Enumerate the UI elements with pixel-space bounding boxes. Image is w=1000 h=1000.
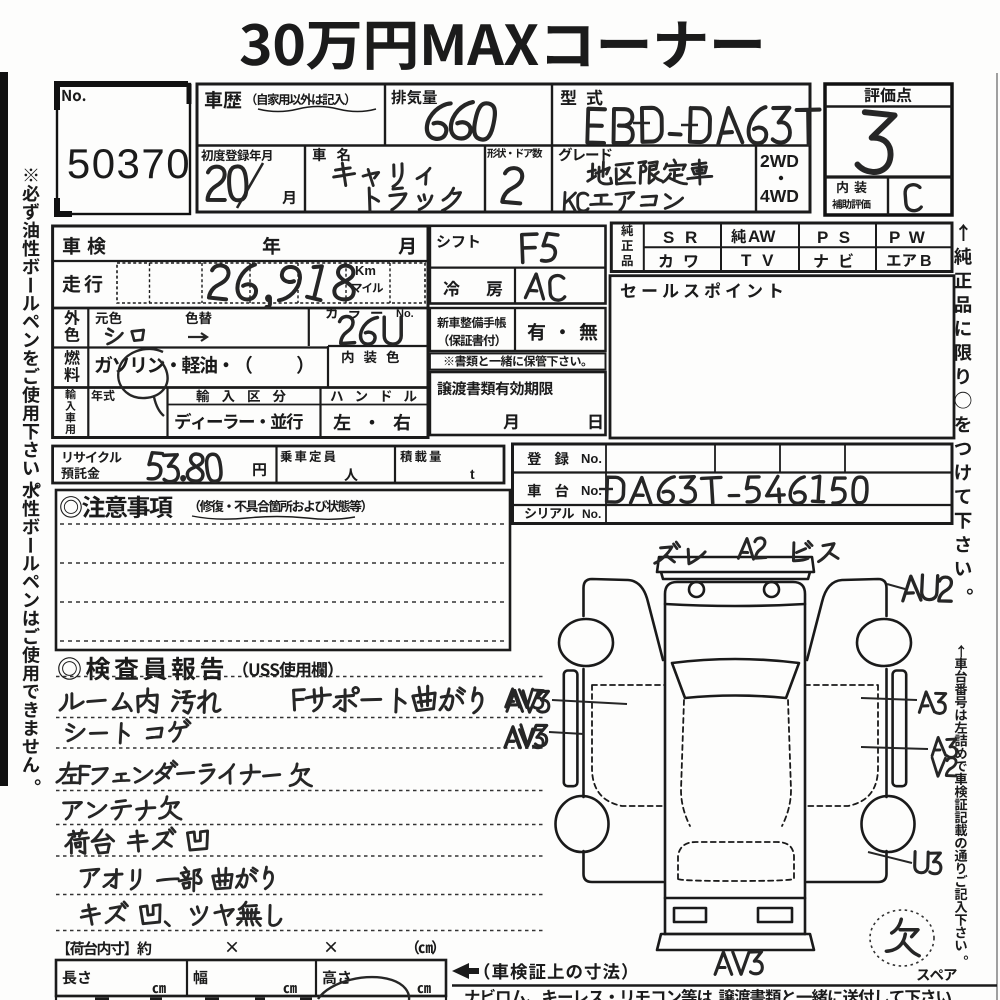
svg-text:No.: No. [581,451,602,466]
svg-text:2WD: 2WD [760,151,799,171]
svg-text:t: t [470,466,475,482]
svg-text:P W: P W [889,228,927,247]
svg-text:No.: No. [581,483,602,498]
svg-text:Km: Km [355,263,376,278]
svg-text:No.: No. [396,308,414,320]
svg-text:B: B [920,253,932,270]
svg-text:No.: No. [582,507,601,521]
svg-text:AW: AW [748,227,776,246]
svg-text:T V: T V [741,251,776,270]
svg-text:50370: 50370 [67,140,191,187]
svg-text:4WD: 4WD [760,186,799,206]
svg-text:P S: P S [817,228,853,247]
svg-text:S R: S R [663,228,700,247]
